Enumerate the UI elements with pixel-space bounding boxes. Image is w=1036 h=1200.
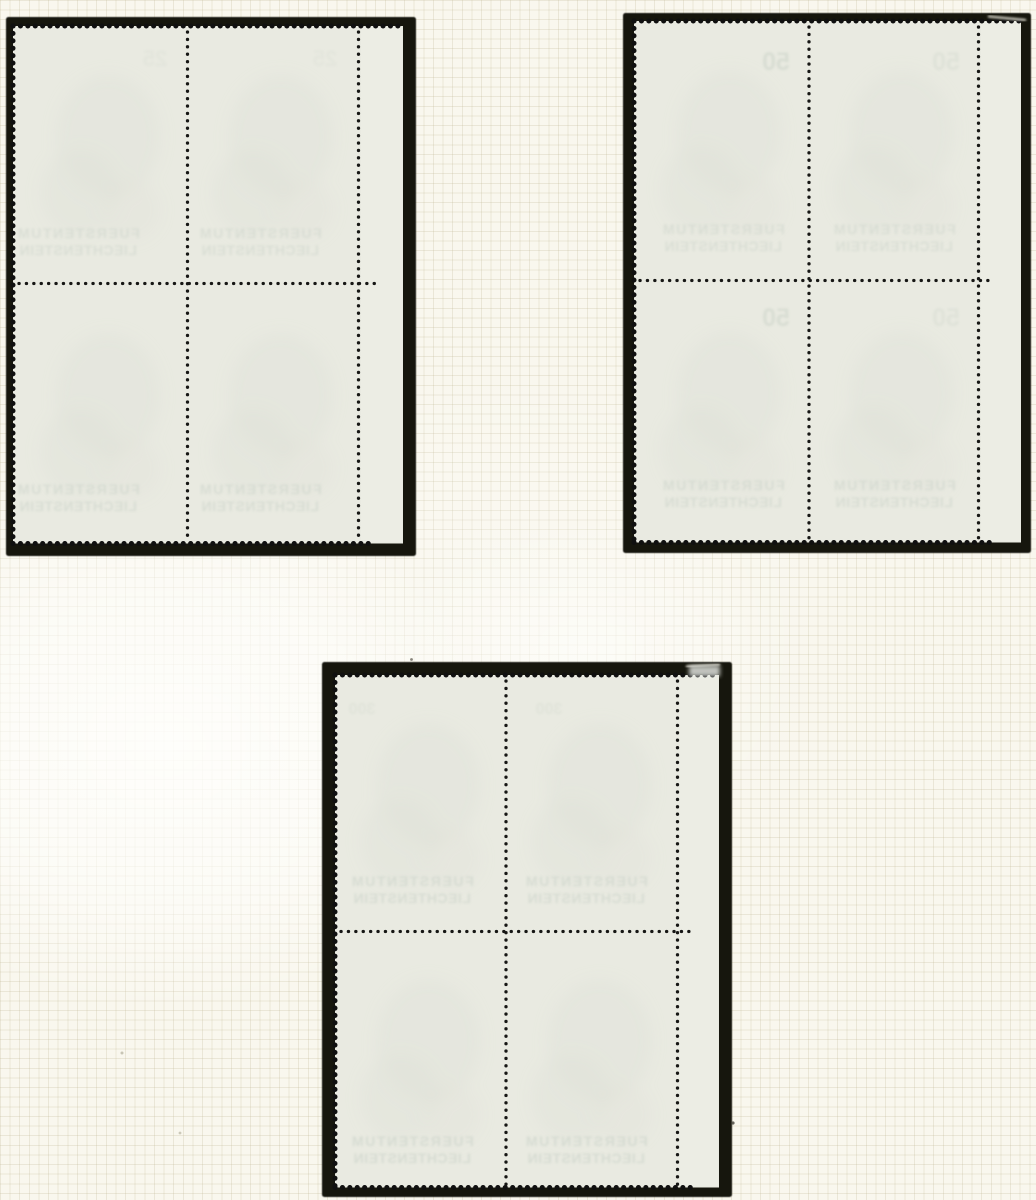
svg-text:FUERSTENTUM: FUERSTENTUM <box>661 477 784 493</box>
svg-text:LIECHTENSTEIN: LIECHTENSTEIN <box>201 498 319 514</box>
svg-text:25: 25 <box>143 46 167 71</box>
svg-text:50: 50 <box>932 48 960 76</box>
svg-text:FUERSTENTUM: FUERSTENTUM <box>832 221 955 237</box>
svg-text:50: 50 <box>932 304 960 332</box>
svg-text:LIECHTENSTEIN: LIECHTENSTEIN <box>664 494 782 510</box>
svg-text:FUERSTENTUM: FUERSTENTUM <box>524 873 647 889</box>
svg-text:LIECHTENSTEIN: LIECHTENSTEIN <box>201 242 319 258</box>
svg-text:FUERSTENTUM: FUERSTENTUM <box>198 225 321 241</box>
svg-text:LIECHTENSTEIN: LIECHTENSTEIN <box>527 1150 645 1166</box>
svg-text:25: 25 <box>313 46 337 71</box>
svg-text:FUERSTENTUM: FUERSTENTUM <box>350 1133 473 1149</box>
svg-text:LIECHTENSTEIN: LIECHTENSTEIN <box>835 494 953 510</box>
svg-text:LIECHTENSTEIN: LIECHTENSTEIN <box>19 242 137 258</box>
svg-text:LIECHTENSTEIN: LIECHTENSTEIN <box>19 498 137 514</box>
svg-text:FUERSTENTUM: FUERSTENTUM <box>198 481 321 497</box>
svg-text:FUERSTENTUM: FUERSTENTUM <box>524 1133 647 1149</box>
svg-text:50: 50 <box>762 48 790 76</box>
svg-text:300: 300 <box>536 701 563 718</box>
svg-text:50: 50 <box>762 304 790 332</box>
svg-text:LIECHTENSTEIN: LIECHTENSTEIN <box>353 890 471 906</box>
svg-text:LIECHTENSTEIN: LIECHTENSTEIN <box>664 238 782 254</box>
svg-text:LIECHTENSTEIN: LIECHTENSTEIN <box>353 1150 471 1166</box>
svg-text:FUERSTENTUM: FUERSTENTUM <box>16 481 139 497</box>
svg-text:FUERSTENTUM: FUERSTENTUM <box>661 221 784 237</box>
svg-text:LIECHTENSTEIN: LIECHTENSTEIN <box>835 238 953 254</box>
svg-text:FUERSTENTUM: FUERSTENTUM <box>832 477 955 493</box>
svg-text:LIECHTENSTEIN: LIECHTENSTEIN <box>527 890 645 906</box>
svg-text:FUERSTENTUM: FUERSTENTUM <box>350 873 473 889</box>
svg-text:FUERSTENTUM: FUERSTENTUM <box>16 225 139 241</box>
svg-text:300: 300 <box>349 701 376 718</box>
